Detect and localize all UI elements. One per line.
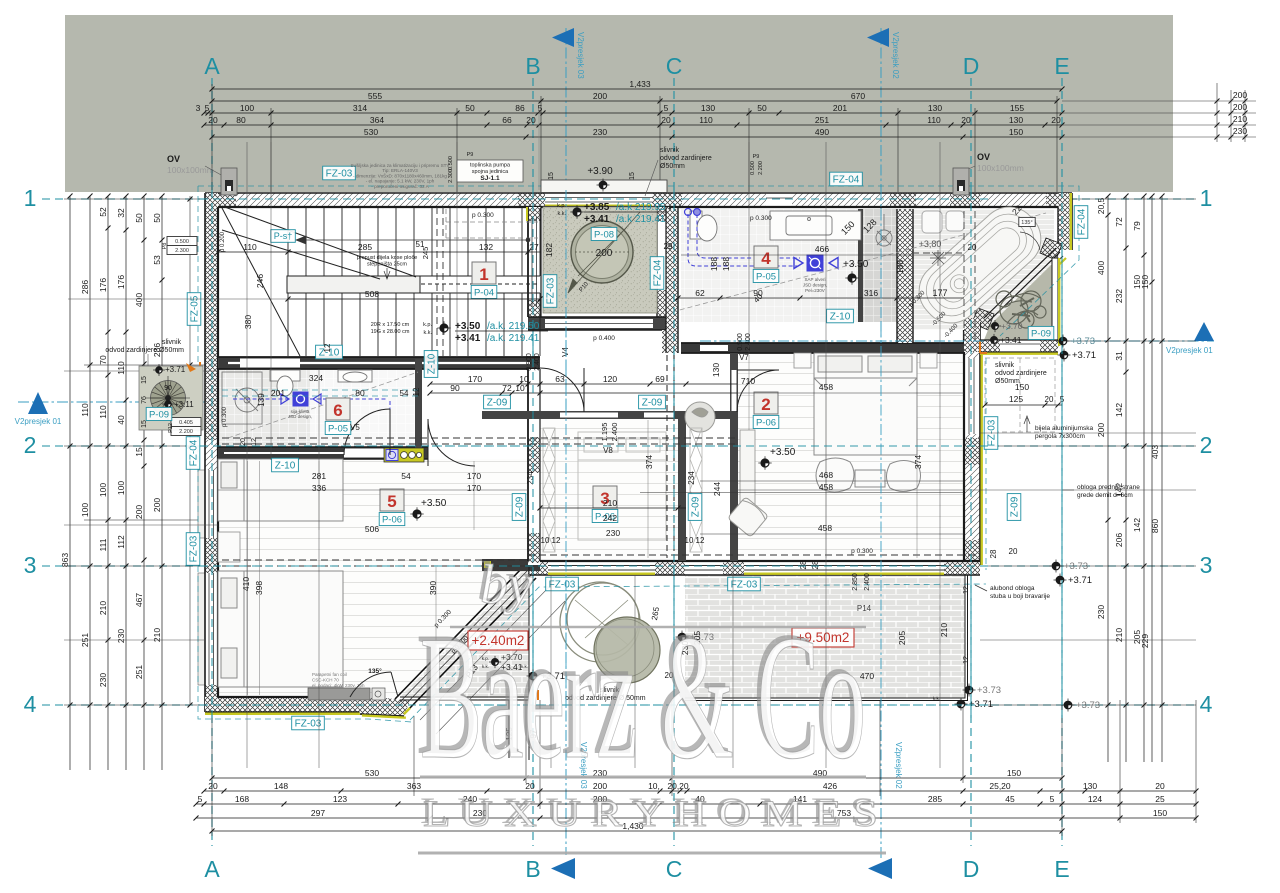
svg-text:propust dijela kose ploče: propust dijela kose ploče [357, 255, 418, 261]
svg-text:20: 20 [208, 781, 218, 791]
svg-text:p 0.300: p 0.300 [750, 215, 772, 222]
svg-text:0.405: 0.405 [179, 420, 193, 426]
svg-text:k.p.: k.p. [557, 203, 566, 209]
svg-text:206: 206 [1114, 533, 1124, 547]
svg-text:OV: OV [977, 152, 990, 162]
svg-text:+3.73: +3.73 [1076, 700, 1100, 711]
svg-text:50: 50 [757, 103, 767, 113]
svg-text:316: 316 [864, 288, 878, 298]
svg-text:FZ-03: FZ-03 [326, 169, 353, 180]
svg-text:150: 150 [1015, 382, 1029, 392]
svg-text:50: 50 [134, 213, 144, 223]
svg-text:403: 403 [1150, 445, 1160, 459]
svg-text:69: 69 [655, 374, 665, 384]
svg-text:6: 6 [333, 401, 342, 420]
svg-text:Z-10: Z-10 [830, 312, 851, 323]
svg-text:120: 120 [603, 374, 617, 384]
svg-text:130: 130 [711, 363, 721, 377]
svg-text:2: 2 [1200, 432, 1213, 458]
svg-text:P-09: P-09 [1031, 328, 1051, 339]
svg-text:p 0.300: p 0.300 [472, 212, 494, 219]
svg-text:244: 244 [712, 482, 722, 496]
svg-text:324: 324 [309, 373, 323, 383]
svg-text:FZ-03: FZ-03 [295, 719, 322, 730]
svg-text:50: 50 [152, 213, 162, 223]
svg-text:201: 201 [271, 388, 285, 398]
svg-text:150: 150 [1153, 808, 1167, 818]
svg-text:400: 400 [1096, 261, 1106, 275]
svg-text:5: 5 [205, 103, 210, 113]
svg-text:V2presjek 02: V2presjek 02 [894, 742, 903, 789]
svg-text:1: 1 [24, 185, 37, 211]
svg-text:110: 110 [98, 405, 108, 419]
svg-text:+3.11: +3.11 [174, 400, 194, 409]
svg-text:130: 130 [928, 103, 942, 113]
svg-text:176: 176 [98, 278, 108, 292]
svg-text:230: 230 [116, 629, 126, 643]
svg-text:210: 210 [939, 623, 949, 637]
svg-text:0.500: 0.500 [448, 156, 454, 170]
svg-text:P-06: P-06 [382, 514, 402, 525]
svg-text:285: 285 [928, 794, 942, 804]
svg-text:110: 110 [243, 242, 257, 252]
svg-text:D: D [963, 53, 980, 79]
svg-text:/a.k 219.41: /a.k 219.41 [616, 214, 666, 225]
svg-text:25: 25 [1155, 794, 1165, 804]
svg-text:C: C [666, 856, 683, 882]
svg-text:297: 297 [311, 808, 325, 818]
svg-text:200: 200 [593, 91, 607, 101]
svg-text:200: 200 [1233, 102, 1247, 112]
svg-text:1,433: 1,433 [629, 79, 651, 89]
svg-text:130: 130 [1083, 781, 1097, 791]
svg-text:230: 230 [606, 528, 620, 538]
svg-text:374: 374 [644, 455, 654, 469]
svg-text:2.400: 2.400 [745, 333, 752, 351]
svg-text:1: 1 [479, 265, 488, 284]
svg-text:200: 200 [1233, 90, 1247, 100]
svg-text:27: 27 [529, 242, 539, 252]
svg-text:28: 28 [811, 560, 820, 569]
svg-text:112: 112 [116, 535, 126, 549]
svg-text:slivnik: slivnik [995, 362, 1015, 369]
svg-text:20: 20 [240, 438, 247, 446]
svg-text:Pel=230V: Pel=230V [805, 288, 825, 293]
svg-text:90: 90 [164, 385, 172, 392]
svg-text:k.k.: k.k. [423, 330, 432, 336]
svg-text:3: 3 [1200, 552, 1213, 578]
svg-text:+3.50: +3.50 [421, 498, 447, 509]
svg-text:508: 508 [365, 289, 379, 299]
svg-text:20: 20 [526, 115, 536, 125]
svg-text:234: 234 [526, 471, 535, 485]
svg-text:245: 245 [421, 247, 430, 260]
svg-text:0.900: 0.900 [526, 353, 533, 371]
svg-text:bijela aluminijumska: bijela aluminijumska [1035, 425, 1094, 432]
svg-text:32: 32 [116, 208, 126, 218]
svg-text:458: 458 [819, 382, 833, 392]
svg-text:200: 200 [134, 505, 144, 519]
svg-text:286: 286 [80, 280, 90, 294]
svg-text:150: 150 [1140, 275, 1150, 289]
svg-text:2.400: 2.400 [610, 423, 619, 442]
svg-text:210: 210 [98, 601, 108, 615]
svg-text:B: B [525, 53, 540, 79]
svg-text:555: 555 [368, 91, 382, 101]
svg-text:100x100mm: 100x100mm [977, 163, 1024, 173]
svg-text:P9: P9 [753, 154, 760, 160]
svg-text:229: 229 [1140, 634, 1150, 648]
svg-text:P-04: P-04 [474, 287, 494, 298]
svg-text:28: 28 [799, 560, 808, 569]
svg-text:p 0.400: p 0.400 [593, 335, 615, 342]
svg-text:4: 4 [1200, 691, 1213, 717]
svg-text:54: 54 [400, 389, 409, 398]
svg-text:251: 251 [134, 665, 144, 679]
svg-text:Z-09: Z-09 [642, 398, 663, 409]
svg-text:p 0.300: p 0.300 [222, 406, 228, 427]
svg-text:/a.k 219.95: /a.k 219.95 [616, 202, 666, 213]
svg-text:100: 100 [240, 103, 254, 113]
svg-text:P-09: P-09 [149, 409, 169, 420]
svg-text:/a.k. 219.41: /a.k. 219.41 [487, 333, 540, 344]
svg-text:200: 200 [596, 248, 613, 259]
svg-text:V2presjek 01: V2presjek 01 [15, 417, 62, 426]
svg-text:2.300: 2.300 [175, 248, 189, 254]
svg-text:V2presjek 02: V2presjek 02 [891, 32, 900, 79]
svg-text:P-06: P-06 [756, 417, 776, 428]
svg-text:188: 188 [721, 257, 731, 271]
svg-text:+3.71: +3.71 [1072, 350, 1096, 361]
svg-text:142: 142 [1132, 518, 1142, 532]
svg-text:4: 4 [761, 249, 771, 268]
svg-text:458: 458 [818, 523, 832, 533]
svg-text:232: 232 [1114, 289, 1124, 303]
svg-text:374: 374 [913, 455, 923, 469]
svg-text:E: E [1054, 856, 1069, 882]
svg-text:79: 79 [1132, 221, 1142, 231]
svg-text:86: 86 [515, 103, 525, 113]
svg-text:- dimenzije: VxŠxD: 870x1180x4: - dimenzije: VxŠxD: 870x1180x460mm, 181k… [353, 172, 447, 178]
svg-text:20: 20 [208, 115, 218, 125]
svg-text:Z-10: Z-10 [427, 353, 438, 374]
svg-text:80: 80 [236, 115, 246, 125]
svg-text:10: 10 [515, 383, 525, 393]
svg-text:230: 230 [593, 127, 607, 137]
svg-text:JSD design,: JSD design, [288, 414, 312, 419]
svg-text:2.200: 2.200 [758, 161, 764, 175]
svg-text:314: 314 [353, 103, 367, 113]
svg-text:19G x 28.00 cm: 19G x 28.00 cm [371, 329, 410, 335]
svg-text:k.k.: k.k. [933, 696, 940, 701]
svg-text:Ø50mm: Ø50mm [660, 163, 685, 170]
svg-text:31: 31 [1114, 351, 1124, 361]
svg-text:slivnik: slivnik [660, 147, 680, 154]
svg-text:230: 230 [1233, 126, 1247, 136]
svg-text:15: 15 [629, 172, 636, 180]
svg-text:230: 230 [98, 673, 108, 687]
svg-text:+3.85: +3.85 [584, 202, 610, 213]
svg-text:P8: P8 [162, 243, 168, 250]
svg-text:70: 70 [98, 355, 108, 365]
svg-text:125: 125 [1009, 394, 1023, 404]
svg-text:281: 281 [312, 471, 326, 481]
svg-text:132: 132 [479, 242, 493, 252]
svg-text:20: 20 [1051, 115, 1061, 125]
svg-text:L U X U R Y H O M E S: L U X U R Y H O M E S [423, 794, 878, 835]
svg-text:135°: 135° [1021, 220, 1032, 226]
svg-text:400: 400 [134, 293, 144, 307]
svg-text:- preporučeni osigurač: 32 A: - preporučeni osigurač: 32 A [371, 184, 429, 189]
svg-text:12: 12 [696, 536, 705, 545]
svg-text:2.400: 2.400 [864, 573, 871, 591]
svg-text:20: 20 [661, 115, 671, 125]
svg-text:40: 40 [116, 415, 126, 425]
svg-text:188: 188 [709, 257, 719, 271]
svg-text:+3.71: +3.71 [165, 365, 186, 374]
svg-text:45: 45 [1005, 794, 1015, 804]
svg-text:P12: P12 [168, 423, 174, 433]
svg-text:398: 398 [254, 581, 264, 595]
svg-text:slivnik: slivnik [162, 339, 182, 346]
svg-text:SAP alveri: SAP alveri [805, 277, 826, 282]
svg-text:5: 5 [1050, 794, 1055, 804]
svg-text:+3.41: +3.41 [455, 333, 481, 344]
svg-text:188: 188 [895, 260, 905, 274]
svg-text:0.500: 0.500 [750, 161, 756, 175]
svg-text:182: 182 [544, 243, 554, 257]
svg-text:Z-09: Z-09 [1010, 496, 1021, 517]
svg-text:364: 364 [370, 115, 384, 125]
svg-text:3: 3 [24, 552, 37, 578]
svg-text:200: 200 [1096, 423, 1106, 437]
svg-text:80: 80 [355, 388, 365, 398]
svg-text:246: 246 [255, 274, 265, 288]
svg-text:155: 155 [1010, 103, 1024, 113]
svg-text:20: 20 [1009, 547, 1018, 556]
svg-text:+3.50: +3.50 [843, 259, 869, 270]
svg-text:336: 336 [312, 483, 326, 493]
svg-text:10: 10 [541, 536, 550, 545]
svg-text:20R x 17.50 cm: 20R x 17.50 cm [371, 322, 410, 328]
svg-text:20: 20 [968, 243, 977, 252]
svg-text:28: 28 [989, 549, 998, 558]
svg-text:29: 29 [664, 242, 673, 251]
svg-text:410: 410 [241, 577, 251, 591]
svg-text:76: 76 [141, 396, 148, 404]
svg-text:100x100mm: 100x100mm [167, 165, 214, 175]
svg-text:110: 110 [927, 115, 941, 125]
svg-text:grede demit d=6cm: grede demit d=6cm [1077, 492, 1133, 499]
svg-text:P-05: P-05 [756, 271, 776, 282]
svg-text:50: 50 [465, 103, 475, 113]
svg-text:251: 251 [815, 115, 829, 125]
svg-text:Z-09: Z-09 [691, 496, 702, 517]
svg-text:FZ-03: FZ-03 [546, 277, 557, 304]
svg-text:FZ-03: FZ-03 [549, 580, 576, 591]
svg-text:670: 670 [851, 91, 865, 101]
svg-text:alubond obloga: alubond obloga [990, 585, 1035, 592]
svg-text:V2presjek 03: V2presjek 03 [576, 32, 585, 79]
svg-text:142: 142 [1114, 403, 1124, 417]
svg-text:P-08: P-08 [594, 229, 614, 240]
svg-text:FZ-04: FZ-04 [653, 259, 664, 286]
svg-text:466: 466 [815, 244, 829, 254]
svg-text:V2presjek 01: V2presjek 01 [1166, 346, 1213, 355]
svg-text:100: 100 [116, 481, 126, 495]
svg-text:12: 12 [323, 343, 332, 352]
svg-text:200: 200 [152, 498, 162, 512]
svg-text:63: 63 [555, 374, 565, 384]
svg-text:p 0.300: p 0.300 [851, 548, 873, 555]
svg-text:/a.k. 219.50: /a.k. 219.50 [487, 321, 540, 332]
svg-text:110: 110 [116, 361, 126, 375]
svg-text:2.850: 2.850 [852, 573, 859, 591]
svg-text:123: 123 [333, 794, 347, 804]
svg-text:168: 168 [235, 794, 249, 804]
svg-text:C: C [666, 53, 683, 79]
svg-text:A: A [204, 53, 220, 79]
svg-text:860: 860 [1150, 519, 1160, 533]
svg-text:72: 72 [502, 383, 512, 393]
svg-text:0.500: 0.500 [175, 239, 189, 245]
svg-text:odvod zardinjere: odvod zardinjere [660, 155, 712, 162]
svg-text:CSC-KCH 70: CSC-KCH 70 [312, 678, 339, 683]
svg-text:+3.70: +3.70 [1001, 321, 1023, 331]
svg-text:468: 468 [819, 470, 833, 480]
svg-text:205: 205 [897, 631, 907, 645]
svg-text:285: 285 [358, 242, 372, 252]
svg-text:+3.90: +3.90 [587, 166, 613, 177]
svg-text:+3.50: +3.50 [455, 321, 481, 332]
svg-text:JSD design,: JSD design, [803, 283, 827, 288]
svg-text:2.200: 2.200 [179, 429, 193, 435]
svg-text:54: 54 [401, 471, 411, 481]
svg-text:110: 110 [80, 403, 90, 417]
svg-text:242: 242 [603, 513, 617, 523]
svg-text:2: 2 [761, 395, 770, 414]
svg-text:+3.71: +3.71 [1068, 575, 1092, 586]
svg-text:15: 15 [134, 447, 144, 457]
svg-text:130: 130 [1009, 115, 1023, 125]
svg-text:124: 124 [1088, 794, 1102, 804]
svg-text:12: 12 [963, 586, 970, 594]
svg-text:2.300: 2.300 [448, 169, 454, 183]
svg-text:FZ-05: FZ-05 [190, 295, 201, 322]
svg-text:210: 210 [1233, 114, 1247, 124]
svg-text:P9: P9 [467, 152, 474, 158]
svg-text:FZ-04: FZ-04 [189, 439, 200, 466]
svg-text:66: 66 [502, 115, 512, 125]
svg-text:+3.73: +3.73 [1064, 561, 1088, 572]
svg-text:SJ-1.1: SJ-1.1 [480, 175, 500, 182]
svg-text:170: 170 [467, 483, 481, 493]
svg-text:Z-10: Z-10 [275, 461, 296, 472]
svg-text:12: 12 [412, 387, 421, 396]
svg-text:710: 710 [741, 376, 755, 386]
svg-text:p 0.200: p 0.200 [220, 231, 226, 252]
svg-text:5: 5 [387, 492, 396, 511]
svg-text:12: 12 [552, 536, 561, 545]
svg-text:A: A [204, 856, 220, 882]
svg-text:2.400: 2.400 [534, 353, 541, 371]
svg-text:E: E [1054, 53, 1069, 79]
svg-text:52: 52 [98, 207, 108, 217]
svg-text:Z-09: Z-09 [487, 398, 508, 409]
svg-text:V5: V5 [350, 423, 360, 432]
svg-text:+3.41: +3.41 [1000, 335, 1022, 345]
svg-text:506: 506 [365, 524, 379, 534]
svg-text:530: 530 [365, 768, 379, 778]
svg-text:k.p.: k.p. [423, 322, 432, 328]
svg-text:odvod zardinjere: odvod zardinjere [995, 370, 1047, 377]
svg-text:380: 380 [243, 315, 253, 329]
svg-text:V8: V8 [603, 446, 613, 455]
svg-text:135°: 135° [368, 667, 382, 675]
svg-text:P-s†: P-s† [274, 231, 293, 241]
svg-text:62: 62 [695, 288, 705, 298]
svg-text:390: 390 [428, 581, 438, 595]
svg-text:FZ-03: FZ-03 [731, 580, 758, 591]
svg-text:10: 10 [685, 536, 694, 545]
svg-text:100: 100 [80, 503, 90, 517]
svg-text:150: 150 [1009, 127, 1023, 137]
svg-text:863: 863 [60, 553, 70, 567]
svg-text:15: 15 [141, 376, 148, 384]
svg-text:170: 170 [467, 471, 481, 481]
svg-text:k.k.: k.k. [557, 211, 566, 217]
svg-text:20: 20 [1045, 395, 1054, 404]
svg-text:Z-09: Z-09 [515, 496, 526, 517]
svg-text:150: 150 [1007, 768, 1021, 778]
svg-text:+3,80: +3,80 [919, 239, 942, 249]
svg-text:110: 110 [699, 115, 713, 125]
svg-text:176: 176 [116, 275, 126, 289]
svg-text:490: 490 [815, 127, 829, 137]
svg-text:stuba u boji bravarije: stuba u boji bravarije [990, 593, 1050, 600]
svg-text:12: 12 [963, 656, 970, 664]
svg-text:Parapetni fan coil: Parapetni fan coil [312, 672, 347, 677]
svg-text:25,20: 25,20 [989, 781, 1011, 791]
svg-text:OV: OV [167, 154, 180, 164]
svg-text:210: 210 [603, 498, 617, 508]
svg-text:1.195: 1.195 [600, 423, 609, 442]
svg-text:D: D [963, 856, 980, 882]
svg-text:139: 139 [257, 393, 266, 407]
svg-text:177: 177 [932, 288, 947, 298]
svg-text:100: 100 [98, 483, 108, 497]
svg-text:12: 12 [251, 438, 258, 446]
svg-text:148: 148 [274, 781, 288, 791]
svg-text:FZ-04: FZ-04 [833, 175, 860, 186]
svg-text:170: 170 [468, 374, 482, 384]
svg-text:458: 458 [819, 482, 833, 492]
svg-text:5: 5 [538, 103, 543, 113]
svg-text:4: 4 [24, 691, 37, 717]
svg-text:15: 15 [548, 172, 555, 180]
svg-text:530: 530 [364, 127, 378, 137]
svg-text:+3.50: +3.50 [770, 447, 796, 458]
svg-text:15: 15 [141, 420, 148, 428]
svg-text:20: 20 [1155, 781, 1165, 791]
svg-text:Baerz & Co: Baerz & Co [420, 598, 866, 796]
svg-text:111: 111 [98, 538, 108, 551]
svg-text:53: 53 [152, 255, 162, 265]
svg-text:FZ-03: FZ-03 [189, 535, 200, 562]
svg-text:201: 201 [833, 103, 847, 113]
svg-text:stepeništa 25cm: stepeništa 25cm [367, 262, 407, 268]
svg-text:230: 230 [1096, 605, 1106, 619]
